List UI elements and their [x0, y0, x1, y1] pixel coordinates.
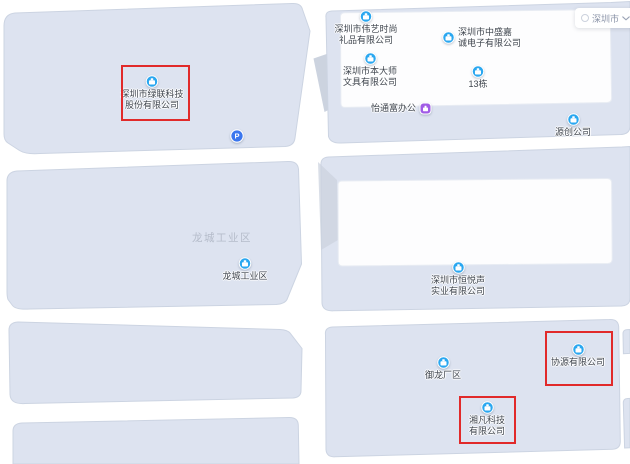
- building-roof: [338, 179, 612, 267]
- poi-text: 13栋: [468, 79, 487, 90]
- buildings-layer: [0, 0, 630, 464]
- poi-label[interactable]: 深圳市绿联科技股份有限公司: [120, 75, 183, 110]
- city-ring-icon: [581, 14, 589, 22]
- building-footprint: [623, 330, 630, 354]
- poi-text: 协源有限公司: [551, 357, 605, 368]
- poi-label[interactable]: 深圳市中盛嘉诚电子有限公司: [442, 27, 521, 48]
- poi-label[interactable]: 深圳市伟艺时尚礼品有限公司: [334, 10, 397, 45]
- company-icon: [442, 31, 455, 44]
- poi-label[interactable]: 怡通富办公: [371, 102, 432, 115]
- poi-text: 有限公司: [469, 426, 505, 437]
- poi-text: 湘凡科技: [469, 415, 505, 426]
- poi-text: 深圳市绿联科技: [120, 89, 183, 100]
- company-icon: [571, 343, 584, 356]
- company-icon: [145, 75, 158, 88]
- poi-label[interactable]: 源创公司: [555, 113, 591, 138]
- company-icon: [471, 65, 484, 78]
- poi-label[interactable]: 深圳市恒悦声实业有限公司: [431, 261, 485, 296]
- chevron-down-icon: [622, 16, 630, 21]
- office-icon: [419, 102, 432, 115]
- building-footprint: [7, 161, 302, 309]
- city-selector-label: 深圳市: [592, 12, 619, 25]
- company-icon: [566, 113, 579, 126]
- poi-label[interactable]: 龙城工业区: [222, 257, 267, 282]
- company-icon: [480, 401, 493, 414]
- building-footprint: [623, 398, 630, 448]
- poi-text: 深圳市中盛嘉: [458, 27, 521, 38]
- building-footprint: [325, 319, 620, 456]
- city-selector[interactable]: 深圳市: [575, 8, 630, 28]
- poi-text: 诚电子有限公司: [458, 38, 521, 49]
- area-label: 龙城工业区: [192, 230, 252, 245]
- poi-label[interactable]: 湘凡科技有限公司: [469, 401, 505, 436]
- map-canvas[interactable]: 龙城工业区 深圳市绿联科技股份有限公司 深圳市伟艺时尚礼品有限公司 深圳市中盛嘉…: [0, 0, 630, 464]
- svg-text:P: P: [234, 132, 239, 141]
- poi-label[interactable]: 13栋: [468, 65, 487, 90]
- poi-text: 源创公司: [555, 127, 591, 138]
- parking-poi[interactable]: P: [230, 129, 244, 143]
- poi-label[interactable]: 深圳市本大师文具有限公司: [343, 52, 397, 87]
- poi-text: 实业有限公司: [431, 286, 485, 297]
- company-icon: [359, 10, 372, 23]
- poi-label[interactable]: 协源有限公司: [551, 343, 605, 368]
- building-footprint: [13, 417, 299, 464]
- poi-text: 龙城工业区: [222, 271, 267, 282]
- poi-text: 深圳市伟艺时尚: [334, 24, 397, 35]
- parking-icon: P: [230, 129, 244, 143]
- poi-text: 御龙厂区: [425, 370, 461, 381]
- poi-text: 股份有限公司: [120, 100, 183, 111]
- poi-text: 怡通富办公: [371, 103, 416, 114]
- poi-text: 文具有限公司: [343, 77, 397, 88]
- poi-text: 深圳市恒悦声: [431, 275, 485, 286]
- company-icon: [363, 52, 376, 65]
- poi-text: 礼品有限公司: [334, 35, 397, 46]
- poi-label[interactable]: 御龙厂区: [425, 356, 461, 381]
- company-icon: [451, 261, 464, 274]
- building-footprint: [9, 322, 302, 404]
- company-icon: [238, 257, 251, 270]
- poi-text: 深圳市本大师: [343, 66, 397, 77]
- company-icon: [436, 356, 449, 369]
